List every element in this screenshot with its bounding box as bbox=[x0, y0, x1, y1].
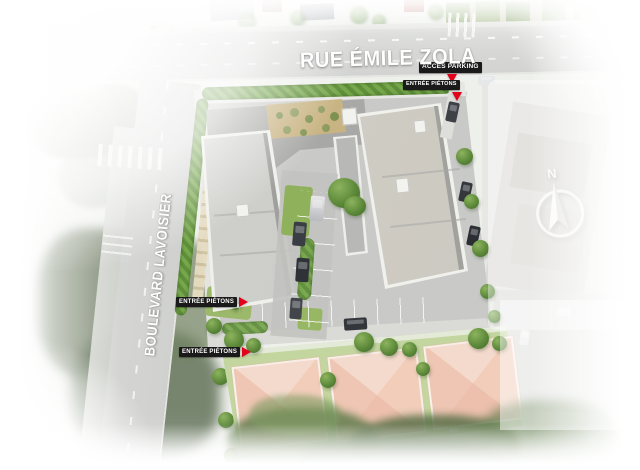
parking-marks bbox=[101, 234, 133, 261]
car bbox=[295, 258, 310, 283]
car bbox=[556, 308, 570, 316]
tree bbox=[380, 338, 398, 356]
marker-entree-pietons-nord-label: ENTRÉE PIÉTONS bbox=[403, 80, 460, 90]
roof-plant bbox=[305, 115, 313, 123]
car bbox=[309, 195, 325, 221]
north-arrow: N bbox=[522, 163, 587, 243]
tree bbox=[350, 6, 368, 24]
compass-needle bbox=[538, 178, 576, 237]
roof-plant bbox=[290, 108, 299, 117]
roof-plant bbox=[318, 106, 325, 113]
skylight bbox=[413, 119, 426, 133]
marker-entree-pietons-ouest-haut-arrow bbox=[239, 297, 248, 307]
marker-entree-pietons-nord: ENTRÉE PIÉTONS bbox=[403, 80, 460, 90]
marker-entree-pietons-nord-arrow bbox=[452, 92, 462, 101]
lane-dashes bbox=[56, 34, 640, 48]
car bbox=[478, 76, 495, 86]
aerial-site-plan: N RUE ÉMILE ZOLA BOULEVARD LAVOISIER ACC… bbox=[0, 0, 640, 470]
tree bbox=[468, 328, 489, 349]
roof-plant bbox=[283, 126, 291, 134]
marker-entree-pietons-ouest-bas: ENTRÉE PIÉTONS bbox=[179, 347, 251, 357]
tree bbox=[354, 332, 374, 352]
skylight bbox=[341, 107, 357, 125]
marker-entree-pietons-ouest-haut: ENTRÉE PIÉTONS bbox=[176, 297, 248, 307]
crosswalk bbox=[97, 144, 162, 170]
tree bbox=[492, 336, 507, 351]
tree bbox=[416, 362, 430, 376]
car bbox=[344, 317, 368, 331]
roof-plant bbox=[322, 124, 330, 132]
neighbour-roof bbox=[262, 0, 282, 12]
tree-mass bbox=[250, 395, 340, 435]
tree bbox=[344, 196, 366, 216]
roof-plant bbox=[300, 129, 307, 136]
tree-mass bbox=[300, 440, 500, 470]
tree bbox=[218, 412, 234, 428]
neighbour-roof bbox=[404, 0, 424, 12]
car bbox=[292, 221, 307, 246]
street-label-rue-emile-zola: RUE ÉMILE ZOLA bbox=[300, 44, 476, 73]
tree bbox=[428, 4, 444, 20]
tree bbox=[488, 310, 501, 323]
tree-mass bbox=[480, 400, 620, 470]
tree bbox=[290, 10, 306, 26]
tree bbox=[456, 148, 473, 165]
tree bbox=[480, 284, 495, 299]
tree bbox=[320, 372, 336, 388]
crosswalk bbox=[448, 13, 477, 38]
tree bbox=[206, 318, 222, 334]
tree bbox=[402, 342, 417, 357]
roof-vent bbox=[235, 203, 249, 217]
roof-vent bbox=[395, 177, 409, 193]
marker-entree-pietons-ouest-haut-label: ENTRÉE PIÉTONS bbox=[176, 297, 237, 307]
tree bbox=[472, 240, 489, 257]
marker-entree-pietons-ouest-bas-arrow bbox=[242, 347, 251, 357]
marker-entree-pietons-ouest-bas-label: ENTRÉE PIÉTONS bbox=[179, 347, 240, 357]
tree bbox=[464, 194, 479, 209]
roof-plant bbox=[276, 112, 283, 119]
roof-plant bbox=[330, 112, 339, 121]
